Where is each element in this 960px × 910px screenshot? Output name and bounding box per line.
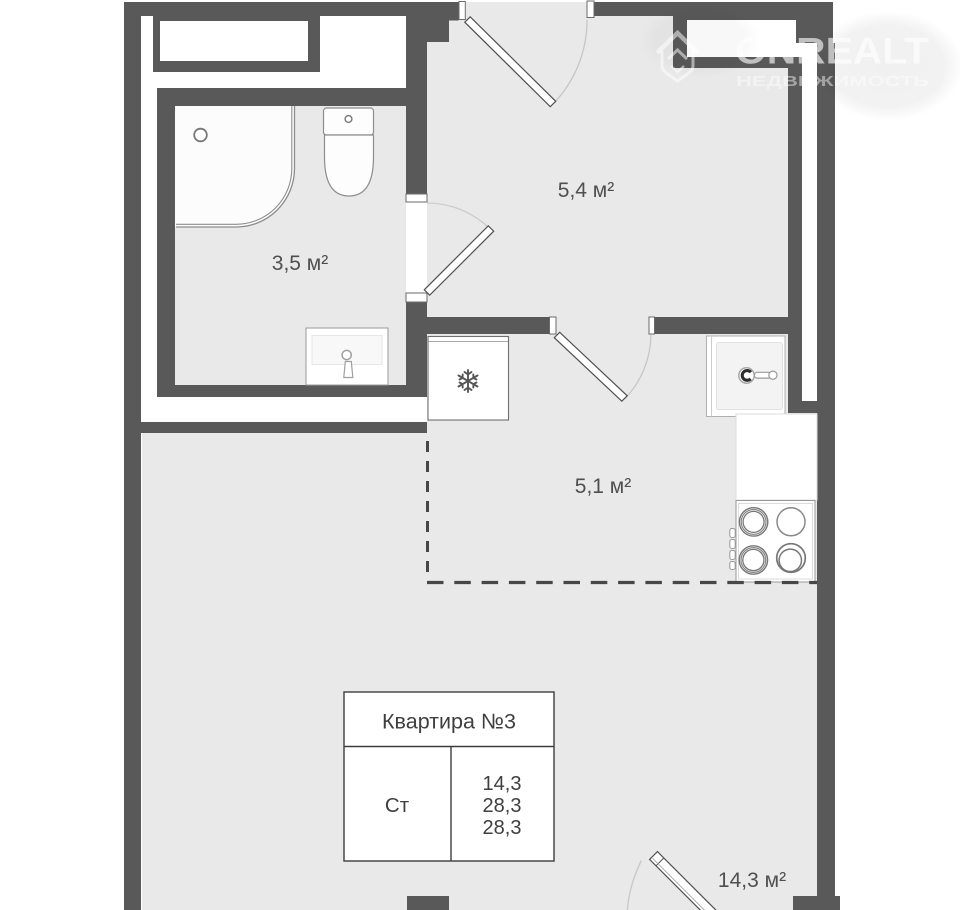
svg-text:28,3: 28,3	[483, 795, 522, 817]
svg-text:28,3: 28,3	[483, 817, 522, 839]
svg-text:5,4 м²: 5,4 м²	[558, 179, 614, 202]
svg-text:Квартира №3: Квартира №3	[382, 710, 516, 734]
svg-text:НЕДВИЖИМОСТЬ: НЕДВИЖИМОСТЬ	[736, 73, 929, 90]
svg-text:14,3 м²: 14,3 м²	[718, 869, 786, 892]
svg-text:14,3: 14,3	[483, 773, 522, 795]
svg-text:5,1 м²: 5,1 м²	[575, 475, 631, 498]
svg-text:Ст: Ст	[385, 794, 410, 817]
svg-text:ONREALT: ONREALT	[735, 31, 929, 72]
svg-text:3,5 м²: 3,5 м²	[272, 252, 328, 275]
